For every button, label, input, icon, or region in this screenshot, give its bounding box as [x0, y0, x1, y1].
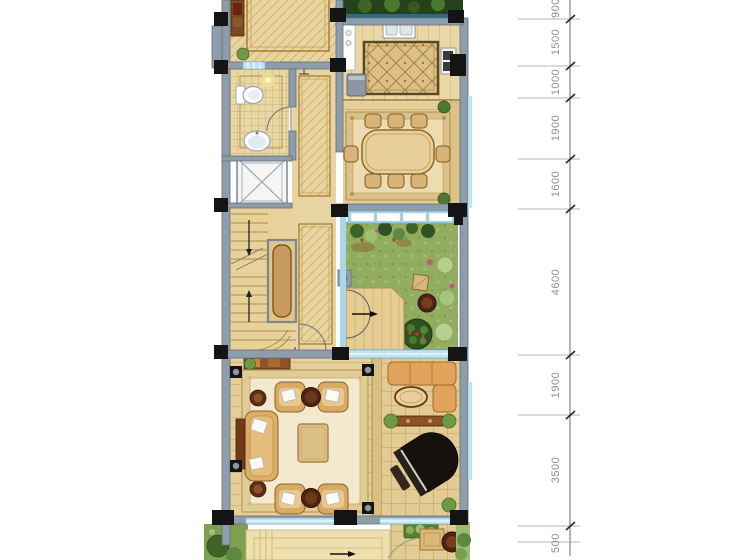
console-divider	[397, 416, 443, 426]
sink-basin-left	[386, 24, 397, 35]
dining-chair	[344, 146, 358, 162]
carpet-motif	[350, 116, 354, 120]
plant-flower	[409, 332, 412, 335]
plant-flower	[422, 335, 425, 338]
dining-chair	[411, 174, 427, 188]
flower	[450, 284, 455, 289]
bathroom-sink-basin	[248, 136, 266, 149]
window-courtyard-left	[340, 216, 346, 350]
plant-flower	[415, 332, 419, 336]
corridor-runner-upper	[299, 76, 330, 196]
wall-left-outer	[222, 0, 230, 545]
column	[450, 510, 468, 525]
shrub	[406, 222, 418, 234]
top-garden	[343, 0, 463, 18]
armchair	[318, 382, 348, 412]
bush	[209, 529, 215, 535]
l-sofa-top	[388, 362, 456, 385]
potted-plant	[237, 48, 249, 60]
column	[334, 510, 357, 525]
armchair	[318, 484, 348, 514]
potted-plant	[384, 414, 398, 428]
plant-leaf	[420, 326, 428, 334]
column	[448, 10, 464, 23]
dimension-label: 1500	[550, 29, 562, 55]
column	[212, 510, 234, 525]
wall-bath-bottom	[222, 156, 292, 161]
dining-table	[362, 130, 434, 174]
sconce-dot	[365, 505, 371, 511]
sideboard-item	[268, 359, 280, 367]
courtyard-garden	[338, 222, 458, 350]
armchair	[275, 382, 305, 412]
sink-faucet	[256, 132, 259, 135]
column	[214, 12, 228, 26]
soil-patch	[351, 242, 375, 252]
wall-living-top	[222, 350, 336, 358]
plant-leaf	[409, 336, 417, 344]
soil-patch	[396, 239, 412, 247]
column	[448, 203, 467, 217]
flower	[360, 238, 364, 242]
column	[330, 58, 346, 72]
potted-plant	[442, 414, 456, 428]
shrub	[350, 224, 364, 238]
corner-pot-inner	[254, 485, 263, 494]
dining-chair	[365, 174, 381, 188]
toilet-bowl-inner	[248, 90, 260, 100]
l-sofa-return	[433, 385, 456, 412]
sink-basin-right	[400, 24, 412, 35]
living-room	[229, 357, 372, 516]
counter-knob	[346, 31, 351, 36]
terrace-table	[420, 529, 444, 550]
shrub	[378, 222, 392, 236]
dining-chair	[365, 114, 381, 128]
carpet-motif	[248, 376, 252, 380]
terrace-deck	[246, 530, 390, 560]
coffee-table	[298, 424, 328, 462]
round-planter-inner	[422, 298, 433, 309]
wall-mid-vertical	[336, 0, 343, 152]
bush	[455, 548, 467, 560]
sconce-dot	[365, 367, 371, 373]
dimension-ruler: 900 1500 1000 1900 1600 4600 1900 3500 5…	[518, 0, 580, 556]
bush-light	[435, 323, 453, 341]
planter-plant	[406, 526, 414, 534]
bathroom	[230, 62, 291, 158]
dimension-label: 1600	[550, 171, 562, 197]
wall-right-outer	[460, 18, 468, 518]
column	[214, 345, 228, 359]
ceiling-light	[265, 77, 271, 83]
window-pane	[377, 213, 400, 221]
carpet-motif	[358, 376, 362, 380]
potted-plant	[245, 359, 256, 370]
room-divider-threshold	[372, 358, 382, 516]
column-stub	[454, 217, 463, 225]
carpet-motif	[442, 116, 446, 120]
console-item	[428, 419, 432, 423]
kitchen	[342, 18, 460, 102]
dimension-label: 1900	[550, 115, 562, 141]
potted-plant	[442, 498, 456, 512]
sconce-dot	[233, 463, 239, 469]
dining-chair	[388, 114, 404, 128]
dimension-label: 500	[550, 533, 562, 553]
corridor-runner-lower	[299, 224, 332, 344]
window-dining-right	[468, 96, 472, 208]
shrub	[408, 1, 420, 13]
bush-light	[439, 290, 455, 306]
corner-pot-inner	[254, 394, 263, 403]
kitchen-mat	[364, 42, 438, 94]
plant-leaf	[420, 338, 427, 345]
wall-hall-bottom	[222, 62, 336, 69]
bush-light	[437, 257, 453, 273]
stepping-pad	[412, 274, 429, 291]
dining-chair	[411, 114, 427, 128]
flower	[392, 238, 396, 242]
window-pane	[351, 213, 374, 221]
column	[450, 54, 466, 76]
cabinet-item	[233, 18, 242, 27]
refrigerator-top	[349, 76, 365, 80]
column	[331, 204, 348, 217]
entrance-rug-border	[247, 0, 329, 51]
carpet-motif	[350, 192, 354, 196]
shrub	[393, 228, 405, 240]
dimension-label: 900	[550, 0, 562, 18]
pillow	[249, 457, 264, 470]
dining-chair	[436, 146, 450, 162]
staircase	[229, 206, 296, 358]
side-table-top	[305, 391, 317, 403]
wall-stairs-top	[222, 203, 292, 208]
column	[214, 60, 228, 74]
dining-chair	[388, 174, 404, 188]
floor-plan-svg: 900 1500 1000 1900 1600 4600 1900 3500 5…	[0, 0, 750, 560]
dining-room	[343, 101, 460, 206]
garden-glass-edge	[343, 14, 463, 18]
window-pane	[403, 213, 426, 221]
stair-rail	[273, 245, 291, 317]
carpet-motif	[248, 502, 252, 506]
dining-bay-ledge	[450, 102, 460, 206]
potted-plant	[438, 101, 450, 113]
column	[332, 347, 349, 360]
wall-kitchen-top	[336, 18, 463, 25]
column	[214, 198, 228, 212]
wall-dining-bottom	[336, 204, 463, 211]
counter-knob	[346, 41, 351, 46]
column	[330, 8, 346, 22]
plant-leaf	[407, 324, 415, 332]
dimension-label: 4600	[550, 269, 562, 295]
dimension-label: 1900	[550, 372, 562, 398]
window-piano-right	[468, 382, 472, 480]
shrub	[421, 224, 435, 238]
flower	[427, 259, 433, 265]
sconce-dot	[233, 369, 239, 375]
floor-plan-image: 900 1500 1000 1900 1600 4600 1900 3500 5…	[0, 0, 750, 560]
wall-bath-right-upper	[289, 69, 296, 107]
armchair	[275, 484, 305, 514]
cabinet-item	[233, 3, 242, 15]
carpet-motif	[358, 502, 362, 506]
elevator	[237, 158, 287, 206]
bush	[457, 533, 471, 547]
dimension-label: 1000	[550, 69, 562, 95]
dimension-label: 3500	[550, 457, 562, 483]
piano-room	[372, 358, 467, 516]
console-item	[406, 419, 410, 423]
side-table-top	[305, 492, 317, 504]
terrace	[204, 522, 471, 560]
flower	[375, 229, 379, 233]
column	[448, 347, 467, 361]
shrub	[365, 230, 377, 242]
